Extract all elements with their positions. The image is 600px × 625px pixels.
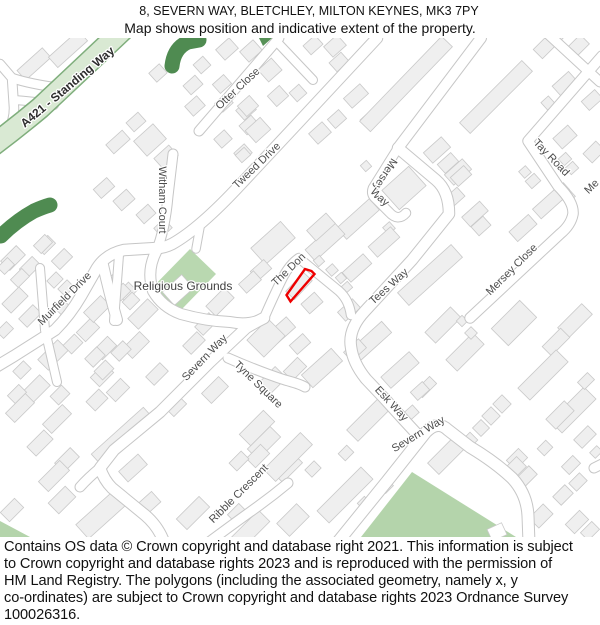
svg-text:Witham Court: Witham Court bbox=[156, 166, 168, 233]
svg-text:Religious Grounds: Religious Grounds bbox=[134, 279, 233, 293]
